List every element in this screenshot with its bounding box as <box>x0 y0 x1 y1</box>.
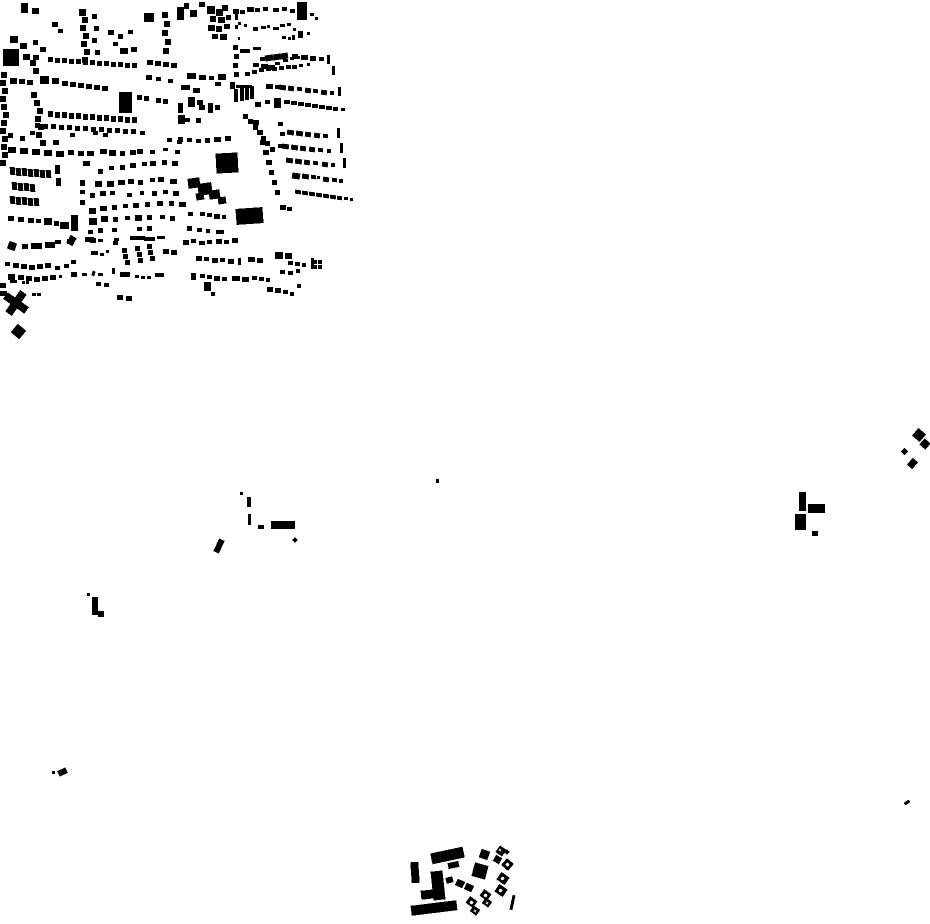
building-footprint <box>128 179 134 184</box>
building-footprint <box>234 89 238 102</box>
building-footprint <box>184 3 189 9</box>
building-footprint <box>259 277 264 281</box>
building-footprint <box>13 263 19 268</box>
building-footprint <box>287 130 295 136</box>
building-footprint <box>98 239 103 242</box>
building-footprint <box>209 76 214 80</box>
building-footprint <box>226 15 231 20</box>
building-footprint <box>471 862 488 879</box>
building-footprint <box>130 150 136 155</box>
building-footprint <box>280 24 285 27</box>
building-footprint <box>314 133 321 139</box>
building-footprint <box>292 54 298 59</box>
building-footprint <box>10 280 17 283</box>
building-footprint <box>447 861 459 869</box>
building-footprint <box>52 22 58 27</box>
building-footprint <box>321 90 328 96</box>
building-footprint <box>214 214 220 219</box>
building-footprint <box>109 166 114 170</box>
building-footprint <box>147 226 152 231</box>
building-footprint <box>330 195 336 200</box>
building-footprint <box>292 35 295 40</box>
building-footprint <box>319 105 325 109</box>
building-footprint <box>288 261 293 265</box>
building-footprint <box>235 207 263 225</box>
building-footprint <box>35 123 40 128</box>
building-footprint <box>169 201 174 206</box>
building-footprint <box>170 179 177 184</box>
building-footprint <box>70 133 75 137</box>
building-footprint <box>100 253 104 256</box>
building-footprint <box>30 184 36 192</box>
building-footprint <box>107 181 114 187</box>
building-footprint <box>290 9 295 13</box>
building-footprint <box>185 118 190 122</box>
building-footprint <box>152 191 157 196</box>
building-footprint <box>53 140 59 145</box>
building-footprint <box>178 115 185 124</box>
building-footprint <box>212 258 218 263</box>
building-footprint <box>115 128 120 133</box>
building-footprint <box>28 198 34 206</box>
building-footprint <box>44 150 52 156</box>
building-footprint <box>45 263 51 268</box>
building-footprint <box>30 60 36 66</box>
building-footprint <box>52 771 55 774</box>
building-footprint <box>302 263 306 267</box>
building-footprint <box>34 169 40 177</box>
building-footprint <box>150 256 155 261</box>
building-footprint <box>181 85 190 90</box>
building-footprint <box>311 175 317 180</box>
building-footprint <box>137 252 142 257</box>
building-footprint <box>50 275 56 280</box>
building-footprint <box>22 168 28 176</box>
building-footprint <box>1 144 7 150</box>
building-footprint <box>123 204 128 208</box>
building-footprint <box>90 114 95 120</box>
building-footprint <box>243 114 248 119</box>
building-footprint <box>224 240 229 244</box>
building-footprint <box>218 17 225 23</box>
building-footprint <box>48 57 53 62</box>
building-footprint <box>225 136 231 141</box>
building-footprint <box>337 196 343 201</box>
building-footprint <box>287 207 292 211</box>
building-footprint <box>279 85 287 91</box>
building-footprint <box>18 275 24 280</box>
building-footprint <box>317 176 320 179</box>
building-footprint <box>131 47 137 52</box>
building-footprint <box>147 244 152 249</box>
building-footprint <box>24 183 30 191</box>
building-footprint <box>284 100 290 104</box>
building-footprint <box>111 62 116 67</box>
building-footprint <box>215 152 238 173</box>
building-footprint <box>96 282 101 286</box>
building-footprint <box>133 203 139 208</box>
building-footprint <box>295 190 301 195</box>
building-footprint <box>327 55 330 64</box>
building-footprint <box>8 274 15 280</box>
building-footprint <box>0 128 6 134</box>
building-footprint <box>200 212 205 216</box>
building-footprint <box>340 143 343 153</box>
building-footprint <box>3 49 19 66</box>
building-footprint <box>332 66 335 75</box>
building-footprint <box>21 264 27 269</box>
building-footprint <box>118 180 125 185</box>
building-footprint <box>266 160 272 165</box>
building-footprint <box>286 65 291 69</box>
building-footprint <box>191 239 196 243</box>
building-footprint <box>252 276 257 280</box>
building-footprint <box>259 68 264 72</box>
building-footprint <box>167 138 172 142</box>
building-footprint <box>123 254 128 259</box>
building-footprint <box>120 165 125 170</box>
building-footprint <box>125 260 130 265</box>
building-footprint <box>312 104 318 108</box>
building-footprint <box>280 270 285 274</box>
building-footprint <box>177 140 182 144</box>
building-footprint <box>130 163 136 168</box>
building-footprint <box>307 32 310 35</box>
building-footprint <box>282 144 290 150</box>
building-footprint <box>244 24 247 27</box>
building-footprint <box>54 221 59 226</box>
building-footprint <box>109 150 116 156</box>
building-footprint <box>28 169 34 177</box>
building-footprint <box>11 324 26 339</box>
building-footprint <box>255 8 260 12</box>
building-footprint <box>410 862 419 884</box>
building-footprint <box>216 9 223 16</box>
building-footprint <box>140 191 144 195</box>
building-footprint <box>282 36 286 39</box>
building-footprint <box>318 148 324 153</box>
building-footprint <box>56 151 64 157</box>
building-footprint <box>80 180 85 186</box>
building-footprint <box>113 42 118 46</box>
building-footprint <box>102 86 108 91</box>
building-footprint <box>234 72 239 77</box>
building-footprint <box>273 27 279 30</box>
building-footprint <box>298 31 303 38</box>
building-footprint <box>326 106 332 110</box>
building-footprint <box>10 78 17 84</box>
building-footprint <box>200 274 205 278</box>
building-footprint <box>313 265 317 269</box>
building-footprint <box>87 593 90 596</box>
building-footprint <box>168 79 173 83</box>
building-footprint <box>33 40 38 45</box>
building-footprint <box>170 216 175 221</box>
building-footprint <box>137 149 143 154</box>
building-footprint <box>300 146 307 152</box>
building-footprint <box>278 122 283 126</box>
building-footprint <box>333 107 338 111</box>
building-footprint <box>40 140 46 146</box>
building-footprint <box>211 292 215 296</box>
building-footprint <box>234 54 239 59</box>
building-footprint <box>113 241 118 245</box>
building-footprint <box>236 85 252 88</box>
building-footprint <box>248 514 251 525</box>
building-footprint <box>98 611 104 617</box>
building-footprint <box>332 178 338 183</box>
building-footprint <box>156 98 161 103</box>
building-footprint <box>290 292 294 296</box>
building-footprint <box>75 126 80 131</box>
building-footprint <box>283 290 288 294</box>
building-footprint <box>310 56 316 61</box>
building-footprint <box>175 150 180 154</box>
building-footprint <box>34 100 40 106</box>
building-footprint <box>138 258 143 263</box>
building-footprint <box>341 108 345 111</box>
building-footprint <box>162 30 168 36</box>
building-footprint <box>113 217 118 222</box>
building-footprint <box>421 889 436 899</box>
building-footprint <box>279 66 284 70</box>
building-footprint <box>114 238 119 241</box>
building-footprint <box>215 105 220 110</box>
building-footprint <box>178 103 183 113</box>
building-footprint <box>302 174 310 180</box>
building-footprint <box>263 7 268 11</box>
building-footprint <box>258 525 264 529</box>
building-footprint <box>479 849 491 861</box>
building-footprint <box>230 82 235 89</box>
building-footprint <box>199 241 205 245</box>
building-footprint <box>162 160 167 165</box>
building-footprint <box>292 537 298 543</box>
building-footprint <box>0 80 6 86</box>
building-footprint <box>318 260 322 264</box>
building-footprint <box>273 53 282 60</box>
building-footprint <box>150 178 155 182</box>
building-footprint <box>164 21 170 27</box>
building-footprint <box>122 248 127 253</box>
building-footprint <box>27 80 33 85</box>
building-footprint <box>271 521 295 529</box>
building-footprint <box>267 287 273 292</box>
building-footprint <box>218 196 227 204</box>
building-footprint <box>148 250 153 255</box>
building-footprint <box>140 236 145 240</box>
building-footprint <box>253 63 259 67</box>
building-footprint <box>307 63 310 66</box>
building-footprint <box>62 58 67 63</box>
building-footprint <box>125 63 130 68</box>
building-footprint <box>55 112 60 118</box>
building-footprint <box>80 200 85 205</box>
building-footprint <box>32 149 40 155</box>
building-footprint <box>282 7 287 11</box>
building-footprint <box>337 128 340 138</box>
building-footprint <box>173 191 179 196</box>
building-footprint <box>275 62 280 65</box>
building-footprint <box>101 216 108 222</box>
building-footprint <box>83 126 88 131</box>
building-footprint <box>103 133 108 137</box>
building-footprint <box>187 73 196 79</box>
building-footprint <box>118 34 123 39</box>
building-footprint <box>8 216 14 221</box>
building-footprint <box>32 8 39 14</box>
building-footprint <box>207 240 212 244</box>
building-footprint <box>126 296 132 301</box>
building-footprint <box>131 129 136 134</box>
building-footprint <box>55 240 61 244</box>
building-footprint <box>274 98 281 108</box>
building-footprint <box>130 236 138 240</box>
building-footprint <box>21 3 28 13</box>
building-footprint <box>295 262 300 266</box>
building-footprint <box>123 129 128 134</box>
building-footprint <box>83 161 90 166</box>
building-footprint <box>205 138 210 143</box>
building-footprint <box>97 115 102 121</box>
building-footprint <box>220 34 227 40</box>
building-footprint <box>157 201 163 206</box>
building-footprint <box>33 68 39 74</box>
building-footprint <box>315 17 318 20</box>
building-footprint <box>62 81 68 86</box>
building-footprint <box>34 198 40 206</box>
building-footprint <box>111 116 116 122</box>
building-footprint <box>55 266 60 270</box>
building-footprint <box>247 497 251 507</box>
building-footprint <box>196 118 201 123</box>
building-footprint <box>3 112 9 118</box>
building-footprint <box>296 131 304 137</box>
building-footprint <box>344 197 348 200</box>
building-footprint <box>98 273 103 276</box>
building-footprint <box>20 148 28 154</box>
building-footprint <box>98 169 103 174</box>
building-footprint <box>493 855 503 865</box>
building-footprint <box>26 276 32 281</box>
building-footprint <box>272 180 277 185</box>
building-footprint <box>224 24 230 29</box>
building-footprint <box>150 150 155 154</box>
building-footprint <box>83 33 89 39</box>
building-footprint <box>322 162 329 168</box>
building-footprint <box>132 117 137 123</box>
building-footprint <box>242 277 249 282</box>
building-footprint <box>37 264 43 269</box>
building-footprint <box>22 281 25 284</box>
building-footprint <box>240 10 245 14</box>
building-footprint <box>288 86 295 92</box>
building-footprint <box>411 900 458 916</box>
building-footprint <box>213 538 224 553</box>
building-footprint <box>208 25 215 31</box>
building-footprint <box>253 120 259 125</box>
building-footprint <box>10 36 18 43</box>
building-footprint <box>232 276 240 281</box>
building-footprint <box>18 183 24 191</box>
building-footprint <box>31 92 37 98</box>
building-footprint <box>51 124 56 129</box>
building-footprint <box>280 132 285 136</box>
building-footprint <box>90 60 95 65</box>
building-footprint <box>808 504 825 513</box>
building-footprint <box>207 6 215 14</box>
building-footprint <box>89 208 96 214</box>
building-footprint <box>204 257 209 261</box>
building-footprint <box>270 147 275 152</box>
building-footprint <box>197 228 202 232</box>
building-footprint <box>157 236 165 239</box>
building-footprint <box>132 63 137 68</box>
building-footprint <box>191 273 196 280</box>
building-footprint <box>285 253 292 259</box>
building-footprint <box>172 161 178 166</box>
building-footprint <box>85 237 94 242</box>
building-footprint <box>127 193 132 197</box>
building-footprint <box>138 180 143 185</box>
building-footprint <box>56 178 61 186</box>
building-footprint <box>297 284 301 288</box>
building-footprint <box>253 47 261 50</box>
building-footprint <box>32 293 36 296</box>
building-footprint <box>214 137 221 142</box>
building-footprint <box>125 117 130 123</box>
building-footprint <box>141 276 145 279</box>
building-footprint <box>795 514 806 530</box>
building-footprint <box>100 191 106 196</box>
building-footprint <box>29 265 35 270</box>
building-footprint <box>55 165 60 174</box>
building-footprint <box>144 13 154 22</box>
building-footprint <box>120 272 130 277</box>
building-footprint <box>104 115 109 121</box>
building-footprint <box>163 62 169 67</box>
building-footprint <box>76 59 81 64</box>
building-footprint <box>318 265 322 269</box>
building-footprint <box>163 249 169 254</box>
building-footprint <box>257 258 263 263</box>
building-footprint <box>313 260 317 264</box>
building-footprint <box>216 239 222 244</box>
building-footprint <box>107 128 112 133</box>
building-footprint <box>91 271 96 277</box>
building-footprint <box>60 222 69 229</box>
building-footprint <box>76 113 81 119</box>
building-footprint <box>257 130 263 135</box>
building-footprint <box>509 895 515 910</box>
building-footprint <box>212 34 218 39</box>
building-footprint <box>64 264 69 268</box>
building-footprint <box>84 49 90 55</box>
building-footprint <box>40 170 46 178</box>
building-footprint <box>117 295 123 300</box>
building-footprint <box>163 148 168 151</box>
building-footprint <box>305 88 312 94</box>
building-footprint <box>92 14 97 19</box>
building-footprint <box>33 55 39 60</box>
building-footprint <box>228 259 234 264</box>
building-footprint <box>52 78 59 84</box>
building-footprint <box>135 246 140 251</box>
building-footprint <box>36 132 42 138</box>
building-footprint <box>144 96 149 101</box>
building-footprint <box>10 196 16 204</box>
building-footprint <box>62 112 67 118</box>
